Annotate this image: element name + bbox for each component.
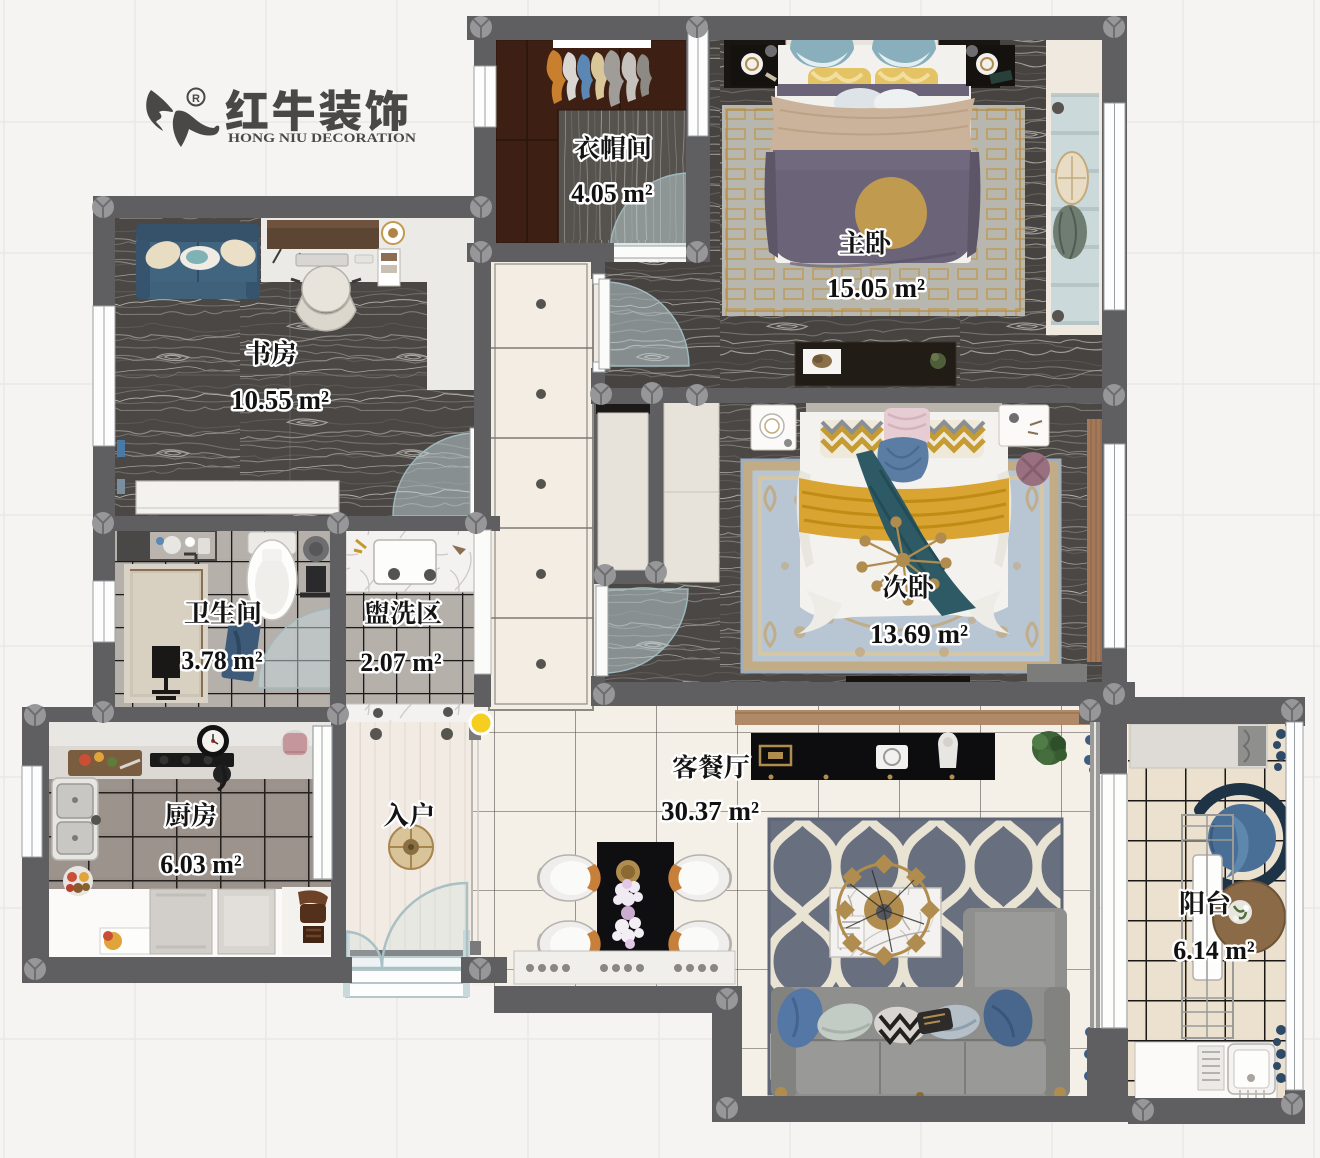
svg-text:3.78 m²: 3.78 m² bbox=[181, 646, 263, 675]
svg-text:6.03 m²: 6.03 m² bbox=[160, 850, 242, 879]
svg-text:4.05 m²: 4.05 m² bbox=[571, 179, 653, 208]
svg-text:R: R bbox=[192, 93, 200, 105]
svg-text:2.07 m²: 2.07 m² bbox=[360, 648, 442, 677]
svg-text:13.69 m²: 13.69 m² bbox=[870, 619, 968, 649]
svg-text:30.37 m²: 30.37 m² bbox=[661, 796, 759, 826]
svg-text:HONG NIU DECORATION: HONG NIU DECORATION bbox=[228, 131, 416, 145]
svg-text:6.14 m²: 6.14 m² bbox=[1173, 936, 1255, 965]
svg-text:15.05 m²: 15.05 m² bbox=[827, 273, 925, 303]
svg-text:10.55 m²: 10.55 m² bbox=[231, 385, 329, 415]
